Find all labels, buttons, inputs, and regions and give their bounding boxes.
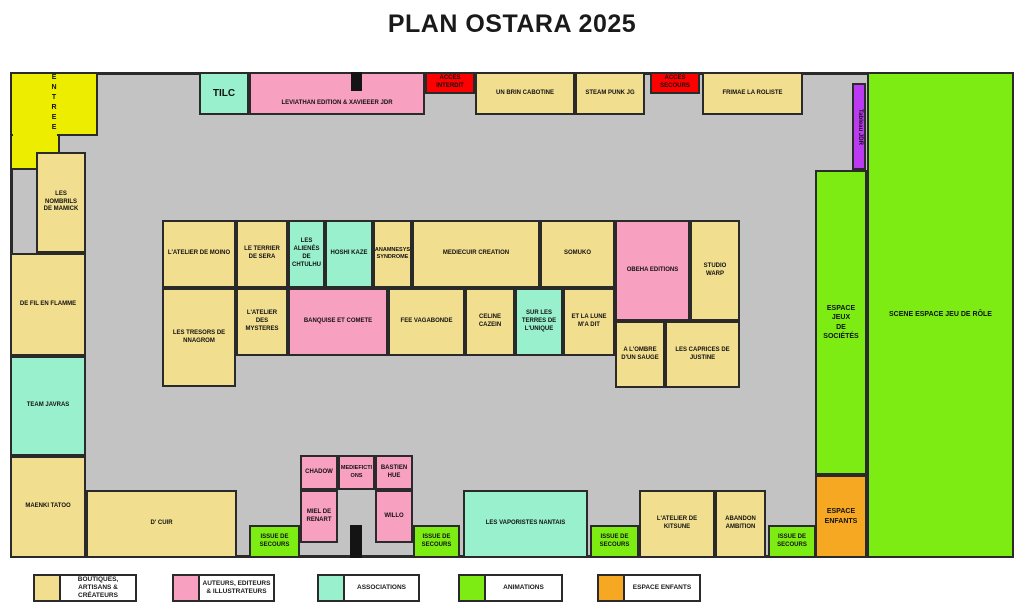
booth-terrier-de-sera: LE TERRIER DE SERA	[236, 220, 288, 288]
exit-issue-de-secours-1: ISSUE DE SECOURS	[249, 525, 300, 558]
booth-nombrils-de-mamick: LES NOMBRILS DE MAMICK	[36, 152, 86, 253]
booth-un-brin-cabotine: UN BRIN CABOTINE	[475, 72, 575, 115]
booth-team-javras: TEAM JAVRAS	[10, 356, 86, 456]
legend-swatch-auteurs	[174, 576, 200, 600]
booth-studio-warp: STUDIO WARP	[690, 220, 740, 321]
legend-swatch-associations	[319, 576, 345, 600]
booth-de-fil-en-flamme: DE FIL EN FLAMME	[10, 253, 86, 356]
booth-mediecuir-creation: MEDIECUIR CREATION	[412, 220, 540, 288]
legend-item-espace-enfants: ESPACE ENFANTS	[597, 574, 701, 602]
booth-leviathan-edition: LEVIATHAN EDITION & XAVIEEER JDR	[249, 72, 425, 115]
legend-label-auteurs: AUTEURS, EDITEURS & ILLUSTRATEURS	[200, 576, 273, 600]
booth-entree-label: ENTREE	[49, 74, 58, 134]
zone-tableau-jdr-label: Tableau JDR	[855, 109, 863, 145]
legend-item-associations: ASSOCIATIONS	[317, 574, 420, 602]
booth-atelier-de-moino: L'ATELIER DE MOINO	[162, 220, 236, 288]
legend-swatch-boutiques	[35, 576, 61, 600]
booth-banquise-et-comete: BANQUISE ET COMETE	[288, 288, 388, 356]
booth-vaporistes-nantais: LES VAPORISTES NANTAIS	[463, 490, 588, 558]
booth-hoshi-kaze: HOSHI KAZE	[325, 220, 373, 288]
booth-steam-punk-jg: STEAM PUNK JG	[575, 72, 645, 115]
booth-tilc: TILC	[199, 72, 249, 115]
exit-issue-de-secours-2: ISSUE DE SECOURS	[413, 525, 460, 558]
zone-tableau-jdr: Tableau JDR	[852, 83, 866, 170]
zone-espace-enfants: ESPACE ENFANTS	[815, 475, 867, 558]
booth-sur-les-terres-de-lunique: SUR LES TERRES DE L'UNIQUE	[515, 288, 563, 356]
booth-somuko: SOMUKO	[540, 220, 615, 288]
booth-caprices-de-justine: LES CAPRICES DE JUSTINE	[665, 321, 740, 388]
exit-issue-de-secours-4: ISSUE DE SECOURS	[768, 525, 816, 558]
exit-issue-de-secours-3: ISSUE DE SECOURS	[590, 525, 639, 558]
booth-atelier-de-kitsune: L'ATELIER DE KITSUNE	[639, 490, 715, 558]
legend-item-boutiques: BOUTIQUES, ARTISANS & CRÉATEURS	[33, 574, 137, 602]
legend-swatch-espace-enfants	[599, 576, 625, 600]
booth-frimae-la-roliste: FRIMAE LA ROLISTE	[702, 72, 803, 115]
booth-tresors-de-nnagrom: LES TRESORS DE NNAGROM	[162, 288, 236, 387]
booth-chadow: CHADOW	[300, 455, 338, 490]
booth-mediefictions: MEDIEFICTI ONS	[338, 455, 375, 490]
booth-a-lombre-dun-sauge: A L'OMBRE D'UN SAUGE	[615, 321, 665, 388]
booth-alienes-de-chtulhu: LES ALIENÉS DE CHTULHU	[288, 220, 325, 288]
booth-celine-cazein: CELINE CAZEIN	[465, 288, 515, 356]
door-top	[351, 72, 362, 91]
legend-swatch-animations	[460, 576, 486, 600]
legend-item-auteurs: AUTEURS, EDITEURS & ILLUSTRATEURS	[172, 574, 275, 602]
legend-label-espace-enfants: ESPACE ENFANTS	[625, 576, 699, 600]
booth-atelier-des-mysteres: L'ATELIER DES MYSTERES	[236, 288, 288, 356]
legend-item-animations: ANIMATIONS	[458, 574, 563, 602]
booth-acces-interdit: ACCES INTERDIT	[425, 72, 475, 94]
legend-label-associations: ASSOCIATIONS	[345, 576, 418, 600]
zone-espace-jeux-de-societes: ESPACE JEUX DE SOCIÉTÉS	[815, 170, 867, 475]
booth-et-la-lune-ma-dit: ET LA LUNE M'A DIT	[563, 288, 615, 356]
booth-acces-secours: ACCES SECOURS	[650, 72, 700, 94]
booth-maenki-tatoo: MAENKI TATOO	[10, 456, 86, 558]
booth-obeha-editions: OBEHA EDITIONS	[615, 220, 690, 321]
booth-anamnesys-syndrome: ANAMNESYS SYNDROME	[373, 220, 412, 288]
legend-label-animations: ANIMATIONS	[486, 576, 561, 600]
zone-scene-espace-jeu-de-role: SCENE ESPACE JEU DE RÔLE	[867, 72, 1014, 558]
booth-d-cuir: D' CUIR	[86, 490, 237, 558]
booth-entree-joint	[13, 131, 57, 137]
legend-label-boutiques: BOUTIQUES, ARTISANS & CRÉATEURS	[61, 576, 135, 600]
booth-miel-de-renart: MIEL DE RENART	[300, 490, 338, 543]
door-bottom	[350, 525, 362, 558]
booth-willo: WILLO	[375, 490, 413, 543]
booth-entree: ENTREE	[10, 72, 98, 136]
booth-abandon-ambition: ABANDON AMBITION	[715, 490, 766, 558]
page-title: PLAN OSTARA 2025	[0, 10, 1024, 39]
booth-bastien-hue: BASTIEN HUE	[375, 455, 413, 490]
booth-fee-vagabonde: FEE VAGABONDE	[388, 288, 465, 356]
